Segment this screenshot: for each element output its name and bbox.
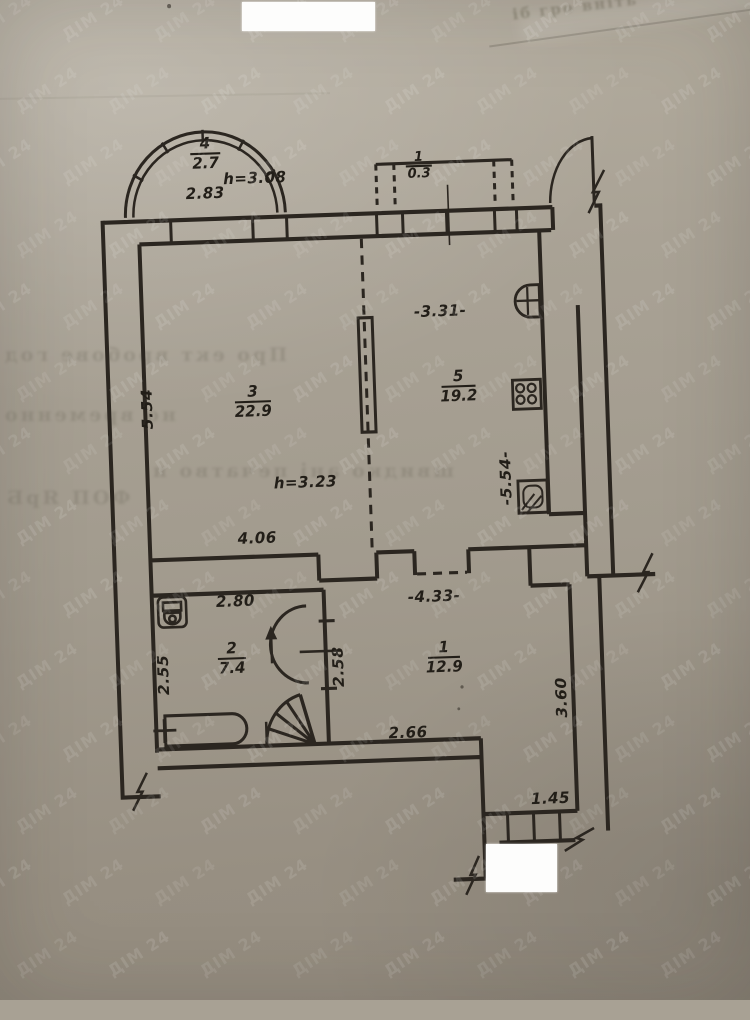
room-area: 7.4 xyxy=(214,659,251,678)
bay-width-dim: 2.83 xyxy=(185,183,225,203)
room-1-label: 1 12.9 xyxy=(423,638,464,677)
stove-icon xyxy=(512,379,541,409)
room-area: 2.7 xyxy=(185,154,226,173)
scanned-floor-plan-photo: { "watermark": { "text": "ДІМ 24" }, "la… xyxy=(0,0,750,1000)
room-number: 2 xyxy=(213,639,250,658)
room-3-label: 3 22.9 xyxy=(230,382,275,421)
room-5-label: 5 19.2 xyxy=(436,367,481,406)
room-2-length-dim: 2.55 xyxy=(154,649,174,695)
porch-width-dim: 1.45 xyxy=(531,788,571,808)
room-2-width-dim: 2.80 xyxy=(216,591,256,611)
toilet-icon xyxy=(158,597,187,628)
wall-break-marks xyxy=(111,169,664,907)
room-area: 19.2 xyxy=(437,387,482,406)
room-1-width2-dim: 2.66 xyxy=(388,722,428,742)
room-number: 4 xyxy=(185,134,226,153)
entry-door xyxy=(548,136,594,205)
room-1-length-dim: 3.60 xyxy=(552,672,572,718)
room-3-height-dim: h=3.23 xyxy=(273,472,337,493)
room-divider-dashed xyxy=(355,235,467,575)
redaction-box-top xyxy=(242,2,375,31)
room-3-length-dim: 5.54 xyxy=(137,387,156,429)
room-area: 12.9 xyxy=(424,658,465,677)
room-number: 1 xyxy=(423,638,464,657)
room-number: 1 xyxy=(400,150,436,166)
redaction-box-bottom xyxy=(486,844,557,892)
floor-plan-linework xyxy=(0,0,750,1020)
bay-height-dim: h=3.08 xyxy=(223,168,287,189)
room-number: 3 xyxy=(230,382,275,401)
balcony-label: 1 0.3 xyxy=(400,150,437,182)
kitchen-sink-icon xyxy=(518,480,548,513)
stair-dim: 2.58 xyxy=(328,641,348,687)
room-5-width-dim: -3.31- xyxy=(414,301,467,322)
wash-basin-icon xyxy=(515,285,541,318)
room-area: 0.3 xyxy=(401,166,437,182)
floor-plan-drawing: 4 2.7 h=3.08 2.83 1 0.3 3 22.9 h=3.23 4.… xyxy=(0,0,750,1020)
bay-room-label: 4 2.7 xyxy=(185,134,226,173)
room-1-width-dim: -4.33- xyxy=(408,586,461,607)
room-number: 5 xyxy=(436,367,481,386)
room-3-width-dim: 4.06 xyxy=(237,528,277,548)
ink-specks xyxy=(167,0,464,720)
room-5-length-dim: -5.54- xyxy=(496,457,516,505)
walls-group xyxy=(101,202,666,891)
room-area: 22.9 xyxy=(231,402,276,421)
room-2-label: 2 7.4 xyxy=(213,639,250,678)
bathtub-icon xyxy=(153,713,247,746)
